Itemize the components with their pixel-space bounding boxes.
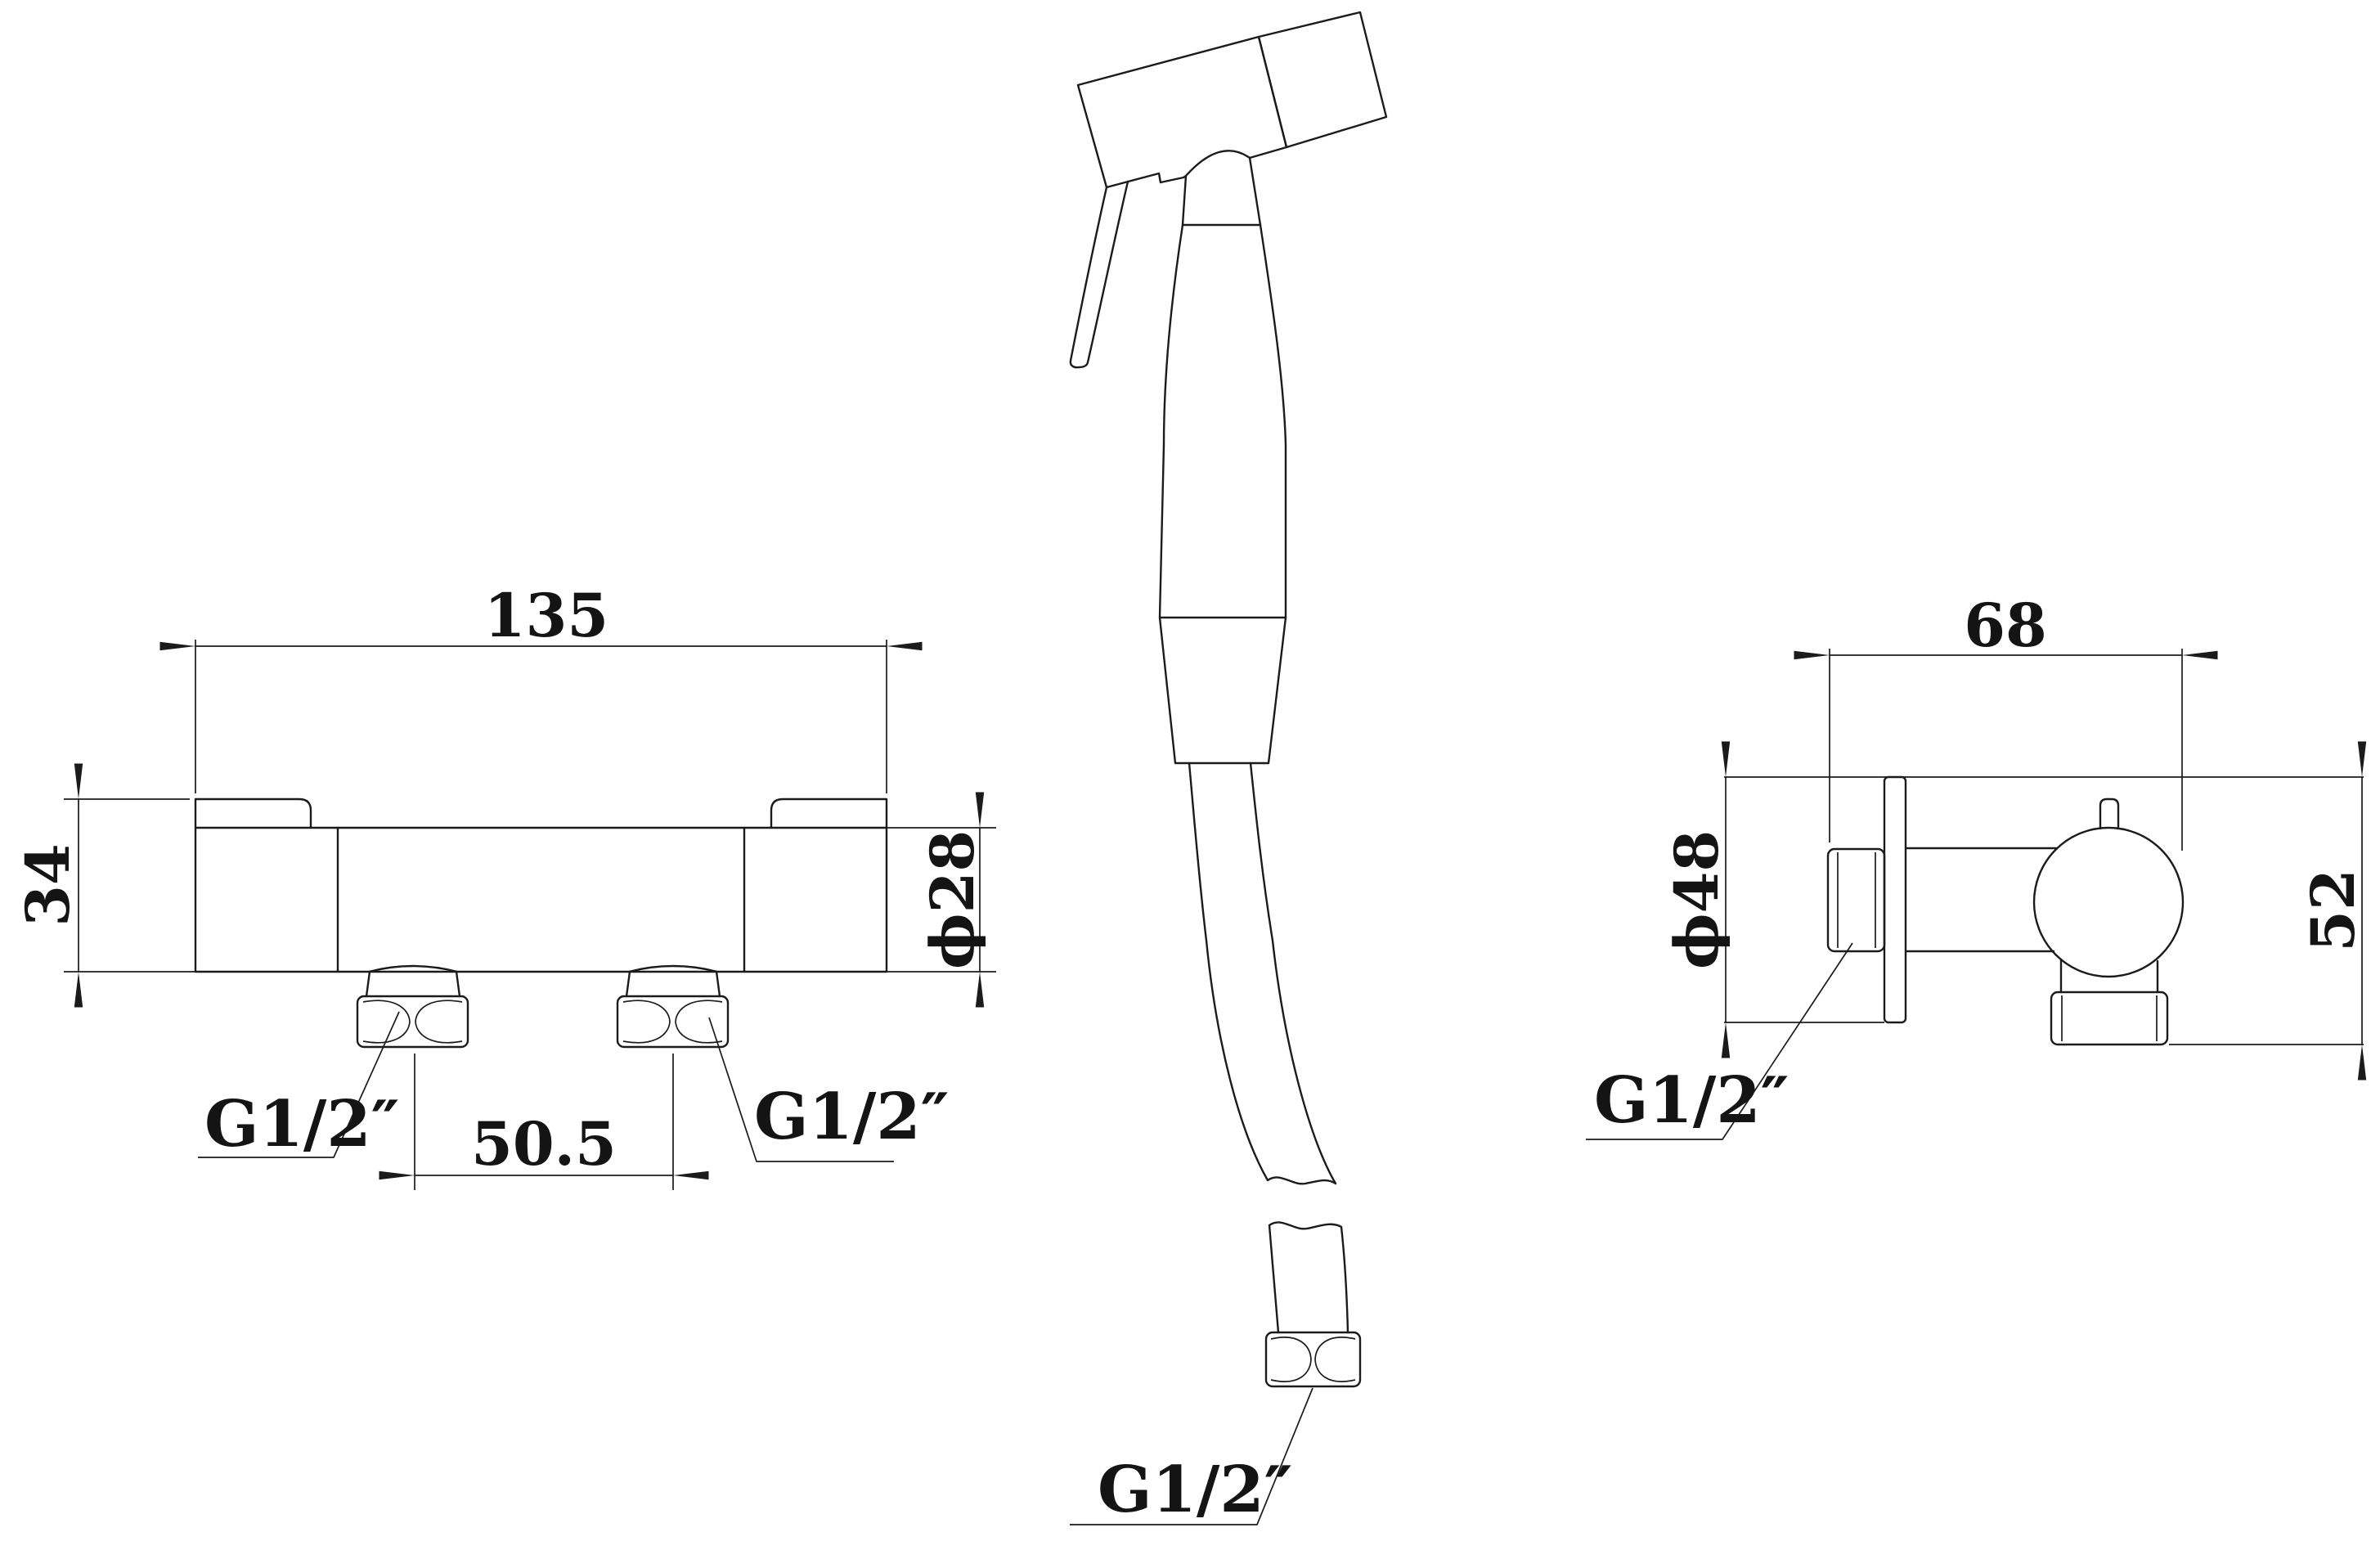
side-outlet-nut-body [2051, 992, 2167, 1045]
hose-thread-label: G1/2″ [1098, 1453, 1293, 1527]
side-view-wall-elbow: 68 ϕ48 52 G1/2″ [1586, 591, 2369, 1139]
outlet-nut-left [357, 966, 468, 1047]
outlet-hex-left-facets [363, 1000, 462, 1043]
dim-52-label: 52 [2298, 869, 2369, 952]
shower-hose-upper [1189, 763, 1336, 1184]
wall-plate [1884, 777, 1906, 1022]
hose-nut-body [1266, 1332, 1360, 1386]
dim-135-label: 135 [484, 581, 608, 651]
thread-left-label: G1/2″ [204, 1087, 400, 1161]
dim-34-label: 34 [13, 843, 83, 927]
mounting-tab-right [771, 799, 887, 828]
sprayer-handle [1160, 158, 1286, 763]
front-view-mixer-bar: 135 34 ϕ28 50.5 G1/2″ [13, 581, 996, 1190]
dim-side-depth: 68 [1830, 591, 2182, 851]
dim-flange-diameter: ϕ48 [1662, 777, 1884, 1022]
sprayer-head [1078, 37, 1287, 187]
technical-drawing-sheet: 135 34 ϕ28 50.5 G1/2″ [0, 0, 2380, 1541]
dim-phi48-label: ϕ48 [1662, 830, 1732, 969]
sprayer-nozzle [1259, 12, 1386, 147]
dim-front-height: 34 [13, 799, 195, 972]
thread-callout-front-right: G1/2″ [709, 1018, 950, 1161]
handle-body [1160, 225, 1286, 618]
dim-outlet-spacing: 50.5 [415, 1054, 673, 1190]
thread-callout-hose: G1/2″ [1070, 1388, 1313, 1527]
hose-nut-facets [1271, 1337, 1355, 1382]
outlet-hex-right-facets [623, 1000, 722, 1043]
outlet-nut-right [617, 966, 728, 1047]
dim-front-width: 135 [195, 581, 887, 793]
control-knob [2034, 828, 2183, 977]
side-outlet-nut [2051, 992, 2167, 1045]
thread-callout-front-left: G1/2″ [198, 1012, 400, 1161]
trigger-lever [1071, 182, 1128, 367]
mounting-tab-left [195, 799, 311, 828]
thread-right-label: G1/2″ [754, 1080, 950, 1154]
dim-side-height: 52 [2169, 777, 2369, 1045]
inlet-nut [1828, 849, 1884, 951]
handset-view-sprayer: G1/2″ [1070, 12, 1386, 1527]
mixer-bar-body [195, 828, 887, 972]
bidet-sprayer-technical-drawing: 135 34 ϕ28 50.5 G1/2″ [0, 0, 2380, 1541]
outlet-hex-left [357, 996, 468, 1047]
handle-cone [1160, 618, 1286, 763]
hose-connector-nut [1266, 1332, 1360, 1386]
dim-505-label: 50.5 [471, 1109, 617, 1179]
shower-hose-lower [1269, 1222, 1348, 1332]
outlet-olive-left [366, 966, 460, 996]
thread-callout-side: G1/2″ [1586, 943, 1852, 1139]
knob-lever-pin [2100, 799, 2118, 829]
dim-phi28-label: ϕ28 [918, 830, 988, 969]
dim-68-label: 68 [1964, 591, 2047, 661]
dim-front-diameter: ϕ28 [887, 828, 996, 972]
outlet-hex-right [617, 996, 728, 1047]
side-thread-label: G1/2″ [1594, 1063, 1789, 1138]
outlet-olive-right [626, 966, 720, 996]
